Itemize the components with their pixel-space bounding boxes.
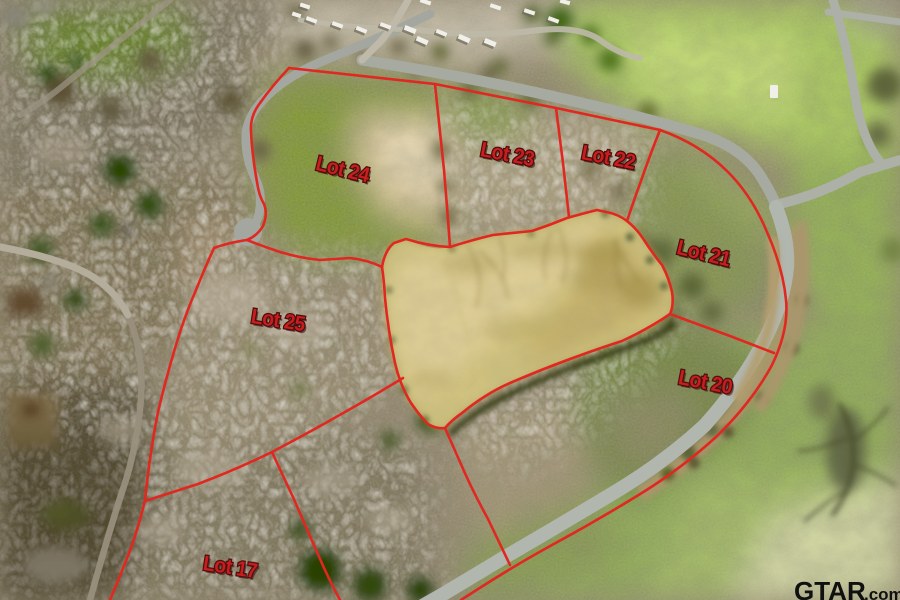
svg-text:GTAR: GTAR bbox=[794, 576, 866, 600]
svg-text:.com: .com bbox=[864, 585, 900, 600]
